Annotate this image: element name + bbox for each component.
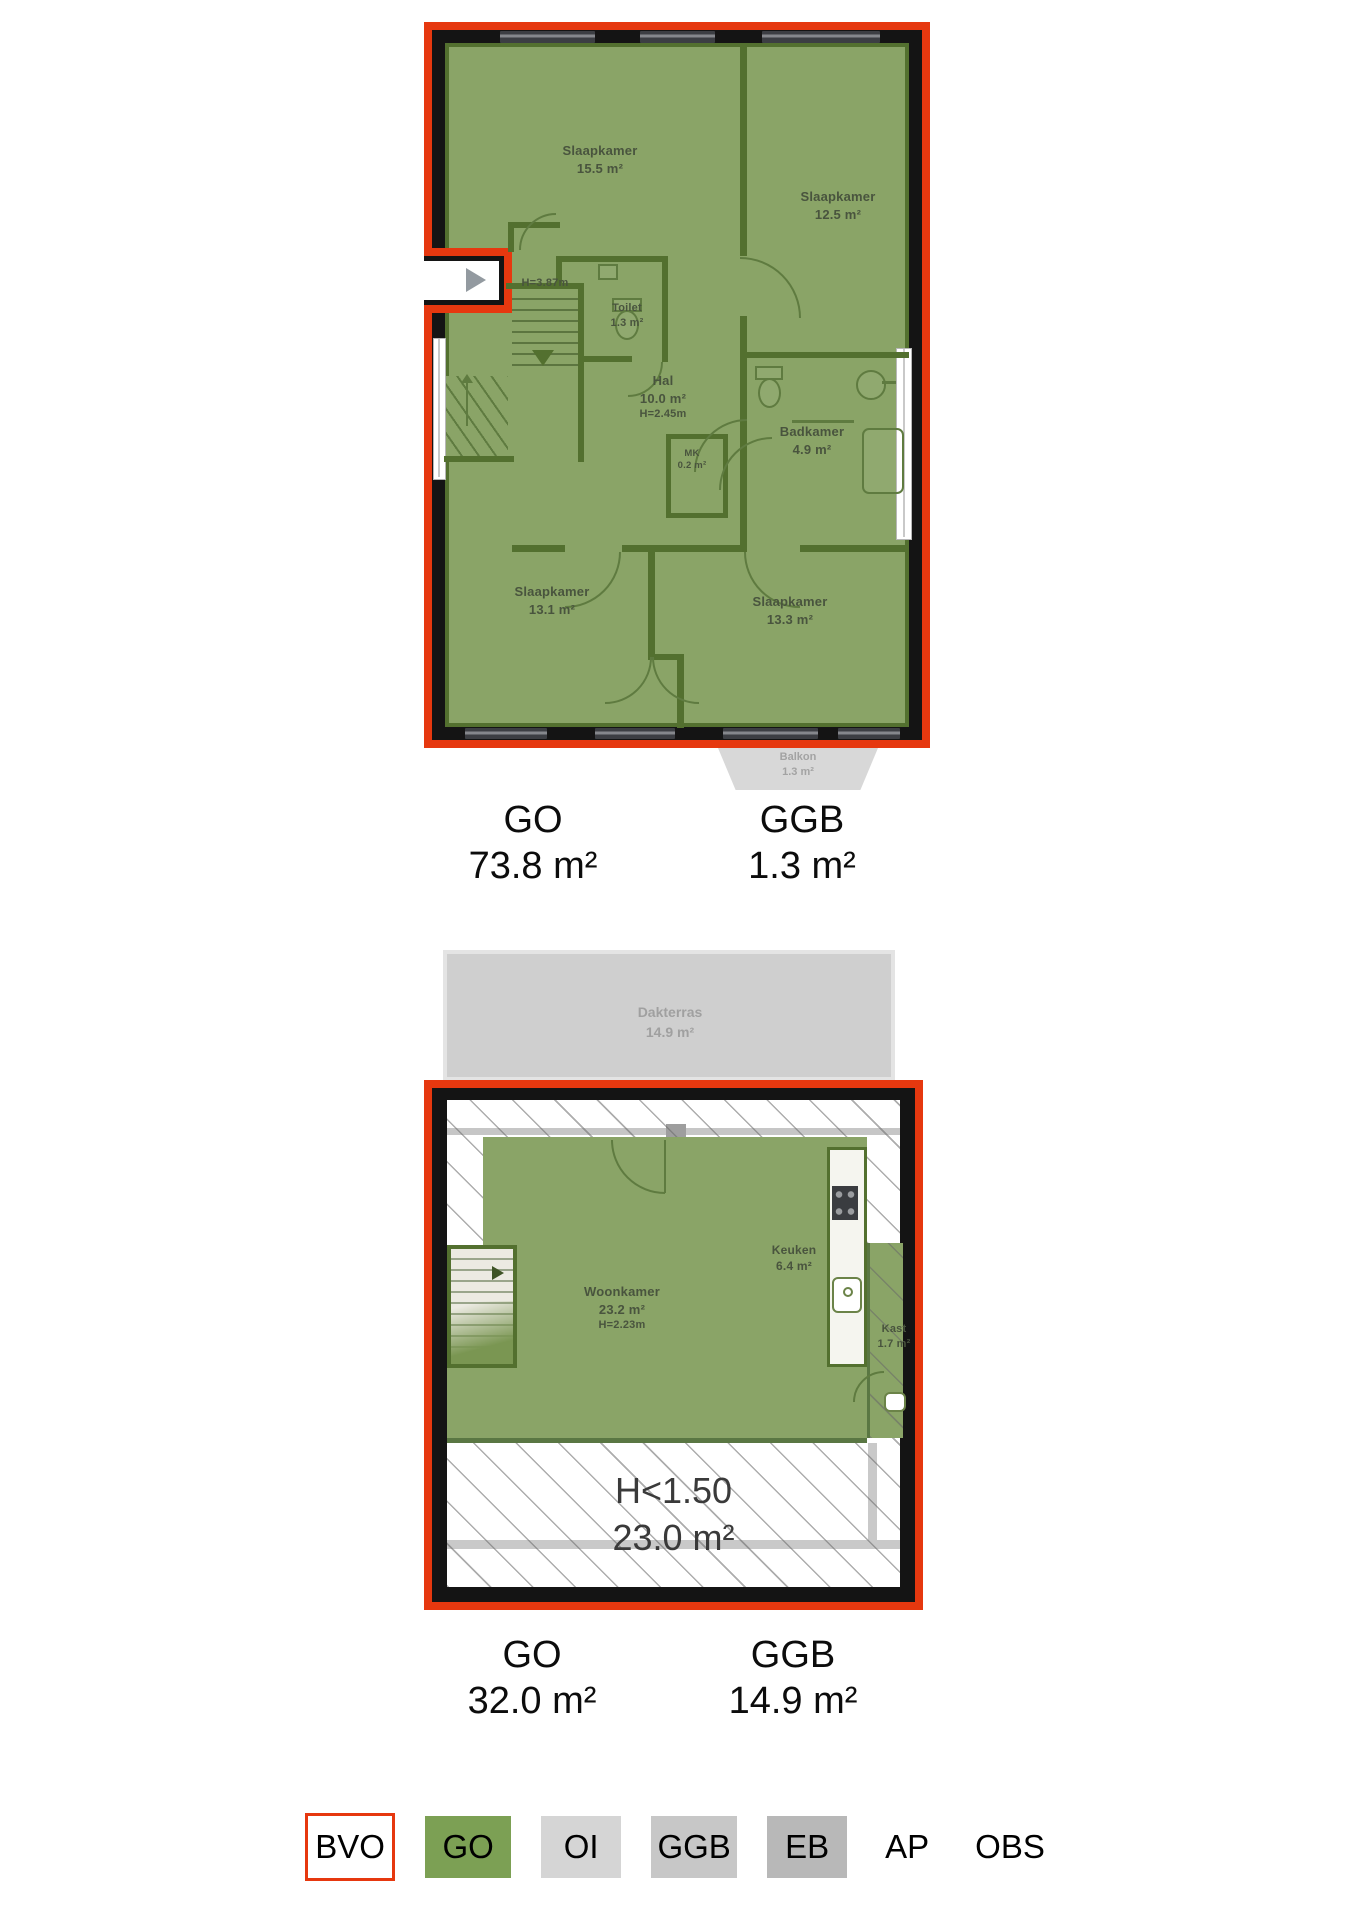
room-label-kast: Kast 1.7 m² <box>863 1322 925 1352</box>
room-area: 23.2 m² <box>532 1301 712 1319</box>
legend-item-obs: OBS <box>967 1816 1053 1878</box>
vide-height-label: H=3.87m <box>495 276 595 291</box>
total-value: 32.0 m² <box>432 1678 632 1724</box>
total-ggb-upper: GGB 1.3 m² <box>702 797 902 890</box>
legend-item-oi: OI <box>541 1816 621 1878</box>
total-value: 1.3 m² <box>702 843 902 889</box>
total-label: GO <box>433 797 633 843</box>
room-label-slaapkamer-2: Slaapkamer 12.5 m² <box>748 188 928 223</box>
total-label: GO <box>432 1632 632 1678</box>
room-label-woonkamer: Woonkamer 23.2 m² H=2.23m <box>532 1283 712 1333</box>
room-area: 10.0 m² <box>593 390 733 408</box>
legend-label: BVO <box>315 1828 385 1866</box>
room-area: 15.5 m² <box>510 160 690 178</box>
total-value: 73.8 m² <box>433 843 633 889</box>
room-area: 12.5 m² <box>748 206 928 224</box>
room-label-badkamer: Badkamer 4.9 m² <box>722 423 902 458</box>
room-area: 6.4 m² <box>739 1258 849 1274</box>
low-height-line1: H<1.50 <box>447 1468 900 1515</box>
room-label-slaapkamer-4: Slaapkamer 13.3 m² <box>700 593 880 628</box>
legend-label: OBS <box>975 1828 1045 1866</box>
room-area: 0.2 m² <box>662 460 722 472</box>
balkon-label: Balkon 1.3 m² <box>738 750 858 781</box>
total-label: GGB <box>693 1632 893 1678</box>
room-name: Slaapkamer <box>748 188 928 206</box>
room-height: H=2.45m <box>593 407 733 422</box>
room-label-hal: Hal 10.0 m² H=2.45m <box>593 372 733 422</box>
room-name: Kast <box>863 1322 925 1337</box>
legend-item-ggb: GGB <box>651 1816 737 1878</box>
room-area: 14.9 m² <box>565 1023 775 1043</box>
legend-label: GGB <box>657 1828 730 1866</box>
room-label-slaapkamer-3: Slaapkamer 13.1 m² <box>462 583 642 618</box>
total-value: 14.9 m² <box>693 1678 893 1724</box>
room-name: Hal <box>593 372 733 390</box>
room-name: Balkon <box>738 750 858 765</box>
total-go-upper: GO 73.8 m² <box>433 797 633 890</box>
low-height-label: H<1.50 23.0 m² <box>447 1468 900 1562</box>
room-name: Woonkamer <box>532 1283 712 1301</box>
room-label-keuken: Keuken 6.4 m² <box>739 1242 849 1274</box>
room-name: Slaapkamer <box>510 142 690 160</box>
room-name: Badkamer <box>722 423 902 441</box>
room-label-toilet: Toilet 1.3 m² <box>577 301 677 331</box>
total-label: GGB <box>702 797 902 843</box>
floorplan-page: Slaapkamer 15.5 m² Slaapkamer 12.5 m² To… <box>0 0 1358 1920</box>
room-area: 13.1 m² <box>462 601 642 619</box>
legend-item-go: GO <box>425 1816 511 1878</box>
room-area: 1.7 m² <box>863 1337 925 1352</box>
total-go-lower: GO 32.0 m² <box>432 1632 632 1725</box>
room-height: H=2.23m <box>532 1318 712 1333</box>
room-name: Dakterras <box>565 1003 775 1023</box>
room-name: Keuken <box>739 1242 849 1258</box>
room-area: 1.3 m² <box>577 316 677 331</box>
total-ggb-lower: GGB 14.9 m² <box>693 1632 893 1725</box>
room-area: 13.3 m² <box>700 611 880 629</box>
room-name: MK <box>662 448 722 460</box>
legend-item-eb: EB <box>767 1816 847 1878</box>
room-area: 1.3 m² <box>738 765 858 780</box>
legend-label: OI <box>564 1828 599 1866</box>
legend-item-ap: AP <box>877 1816 937 1878</box>
legend-label: EB <box>785 1828 829 1866</box>
legend-label: GO <box>442 1828 493 1866</box>
room-label-slaapkamer-1: Slaapkamer 15.5 m² <box>510 142 690 177</box>
room-name: Slaapkamer <box>700 593 880 611</box>
legend-item-bvo: BVO <box>305 1813 395 1881</box>
room-name: Toilet <box>577 301 677 316</box>
dakterras-label: Dakterras 14.9 m² <box>565 1003 775 1042</box>
legend-label: AP <box>885 1828 929 1866</box>
room-name: Slaapkamer <box>462 583 642 601</box>
low-height-line2: 23.0 m² <box>447 1515 900 1562</box>
room-area: 4.9 m² <box>722 441 902 459</box>
room-label-mk: MK 0.2 m² <box>662 448 722 472</box>
legend: BVO GO OI GGB EB AP OBS <box>0 1812 1358 1882</box>
